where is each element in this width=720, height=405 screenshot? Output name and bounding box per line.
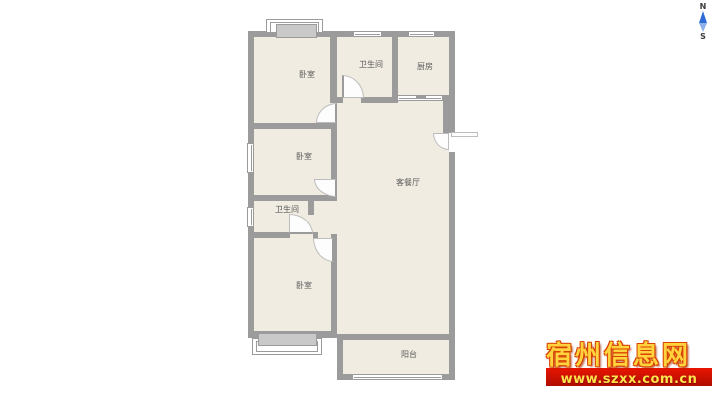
bay-window-top-slab [276, 24, 317, 38]
wall-bathmid-bottom [248, 232, 290, 238]
entry-door-leaf [451, 132, 478, 137]
wall-bedroommid-bottom [248, 195, 337, 201]
wall-bedroommid-right [331, 129, 337, 179]
wall-outer-left [248, 31, 254, 338]
watermark-url: www.szxx.com.cn [561, 372, 698, 387]
window-balcony [352, 374, 443, 380]
watermark-site-name: 宿州信息网 [546, 342, 718, 370]
room-label-bedroom-top: 卧室 [292, 70, 322, 80]
room-label-bedroom-middle: 卧室 [289, 152, 319, 162]
wall-bedroomtop-right [330, 37, 337, 103]
window-kitchen-pass-handle [416, 96, 426, 98]
watermark-banner: www.szxx.com.cn [546, 368, 712, 386]
compass: N S [692, 2, 714, 41]
wall-bath-kitchen [392, 37, 398, 95]
compass-north-label: N [692, 2, 714, 11]
wall-bathmid-right [308, 201, 314, 215]
window-bedroom-middle [247, 143, 254, 173]
room-label-bedroom-bottom: 卧室 [289, 281, 319, 291]
bay-window-bottom-slab [258, 333, 317, 346]
room-label-bathroom-middle: 卫生间 [268, 205, 306, 215]
room-label-living-dining: 客餐厅 [388, 178, 428, 188]
room-label-kitchen: 厨房 [410, 62, 440, 72]
window-kitchen [408, 31, 435, 37]
wall-balcony-bottom-right [443, 374, 455, 380]
wall-entry-stub [443, 95, 449, 133]
wall-balcony-bottom-left [337, 374, 352, 380]
window-bathroom-top [353, 31, 382, 37]
room-label-bathroom-top: 卫生间 [352, 60, 390, 70]
floorplan-page: 卧室 卫生间 厨房 卧室 卫生间 客餐厅 卧室 阳台 N S 宿州信息网 www… [0, 0, 720, 405]
wall-bedrooms-divider [248, 123, 337, 129]
wall-living-balcony [337, 334, 455, 340]
window-bathroom-middle [247, 207, 254, 227]
room-label-balcony: 阳台 [394, 350, 424, 360]
compass-south-label: S [692, 32, 714, 41]
watermark: 宿州信息网 www.szxx.com.cn [546, 342, 718, 386]
wall-outer-right-lower [449, 152, 455, 380]
compass-needle-icon [692, 11, 714, 32]
wall-outer-right-upper [449, 31, 455, 133]
